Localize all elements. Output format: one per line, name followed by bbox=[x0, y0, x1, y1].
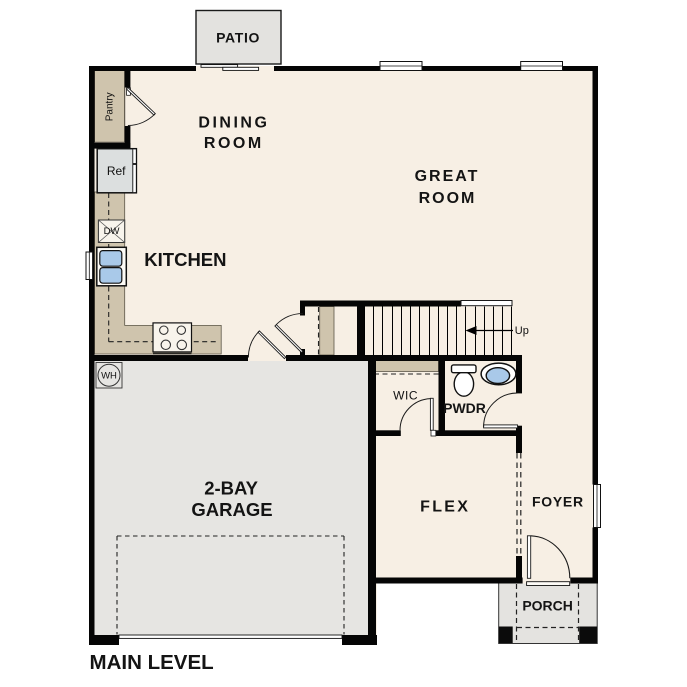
svg-text:WH: WH bbox=[101, 371, 117, 382]
svg-text:Ref: Ref bbox=[107, 164, 126, 178]
svg-text:DINING: DINING bbox=[198, 114, 269, 131]
svg-text:Up: Up bbox=[515, 325, 529, 337]
svg-text:ROOM: ROOM bbox=[419, 190, 477, 207]
svg-text:GARAGE: GARAGE bbox=[191, 499, 272, 520]
svg-text:GREAT: GREAT bbox=[415, 168, 480, 185]
svg-text:PWDR: PWDR bbox=[443, 400, 486, 416]
svg-text:KITCHEN: KITCHEN bbox=[144, 249, 226, 270]
svg-text:Pantry: Pantry bbox=[105, 92, 116, 121]
svg-text:FLEX: FLEX bbox=[420, 499, 470, 516]
svg-text:PATIO: PATIO bbox=[216, 30, 260, 46]
svg-text:FOYER: FOYER bbox=[532, 493, 584, 509]
svg-text:ROOM: ROOM bbox=[204, 135, 264, 152]
svg-text:PORCH: PORCH bbox=[522, 597, 573, 613]
svg-text:WIC: WIC bbox=[393, 389, 418, 403]
svg-text:MAIN LEVEL: MAIN LEVEL bbox=[90, 651, 214, 674]
svg-text:DW: DW bbox=[104, 226, 120, 237]
svg-text:2-BAY: 2-BAY bbox=[204, 478, 258, 499]
